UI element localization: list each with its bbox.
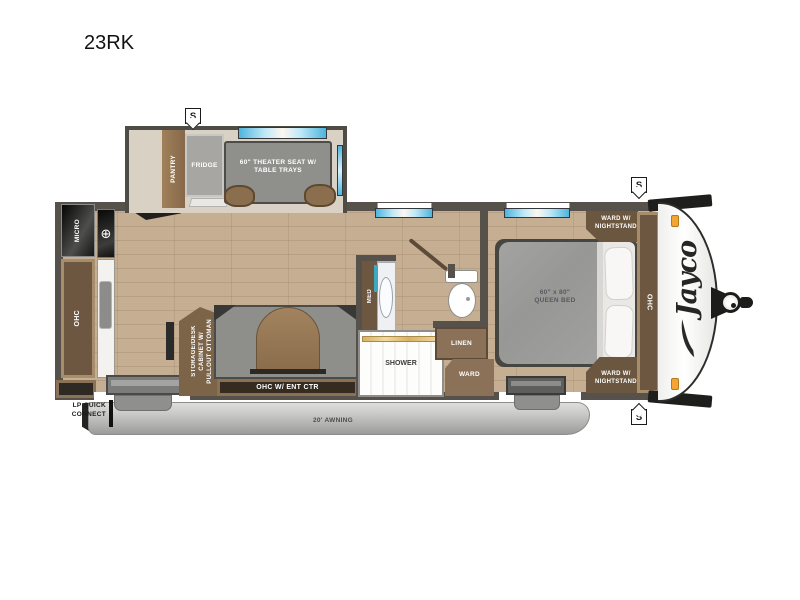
overhead-entertainment-center: OHC W/ ENT CTR: [217, 379, 358, 396]
pillow: [604, 305, 634, 359]
bedroom-ohc-label: OHC: [645, 294, 653, 310]
pantry-label: PANTRY: [170, 155, 178, 183]
vanity-accent: [374, 265, 378, 292]
kitchen-overhead-cabinet: OHC: [61, 259, 95, 378]
refrigerator: FRIDGE: [185, 134, 224, 197]
microwave: MICRO: [61, 204, 95, 257]
wall-mount-strip: [166, 322, 174, 360]
table-tray: [224, 185, 255, 207]
table-tray: [304, 184, 336, 207]
kitchen-ohc-label: OHC: [74, 310, 82, 326]
tongue-jack-wheel: [720, 292, 741, 313]
storage-desk-label: STORAGE/DESK CABINET W/ PULLOUT OTTOMAN: [190, 319, 214, 384]
pillow: [604, 247, 634, 301]
entertainment-arch: [256, 307, 320, 371]
bath-sink: [379, 277, 393, 318]
bedroom-window: [504, 208, 570, 218]
shower-label: SHOWER: [385, 360, 417, 367]
stabilizer-marker: S: [631, 177, 647, 193]
queen-bed-label: 60" x 80" QUEEN BED: [505, 289, 605, 305]
jayco-bird-icon: [679, 318, 697, 358]
clearance-light: [671, 215, 679, 227]
burner-icon: ⊕: [101, 226, 112, 242]
shower-curtain: [362, 336, 440, 342]
pantry: PANTRY: [162, 130, 185, 208]
awning-label: 20' AWNING: [293, 417, 373, 425]
toilet-bowl: [448, 283, 476, 318]
hitch-coupler: [740, 297, 753, 308]
bedroom-step: [514, 395, 560, 410]
brand-logo: Jayco: [656, 240, 720, 358]
clearance-light: [671, 378, 679, 390]
lp-connect-pipe: [109, 399, 113, 427]
linen-label: LINEN: [451, 340, 472, 348]
entry-platform: [106, 375, 184, 395]
bath-bedroom-wall: [480, 209, 488, 333]
bedroom-platform: [506, 376, 566, 395]
jayco-logo-text: Jayco: [673, 240, 704, 315]
cooktop: ⊕: [97, 209, 115, 258]
ent-ctr-label: OHC W/ ENT CTR: [256, 384, 319, 392]
entry-step: [114, 395, 172, 411]
med-label: MED: [366, 289, 374, 303]
microwave-label: MICRO: [74, 219, 82, 242]
stabilizer-marker: S: [185, 108, 201, 124]
window: [375, 208, 433, 218]
stabilizer-marker: S: [631, 409, 647, 425]
lp-quick-connect-label: LP QUICK CONNECT: [46, 402, 106, 419]
entertainment-arch-base: [250, 369, 326, 374]
floorplan-canvas: 23RK 20' AWNING MICRO ⊕ OHC LP QUICK CON…: [0, 0, 800, 600]
linen-cabinet: LINEN: [435, 327, 488, 360]
kitchen-sink: [99, 281, 112, 329]
slide-side-window: [337, 145, 343, 196]
slide-window: [238, 127, 327, 139]
toilet-flush-button: [466, 297, 470, 301]
rear-storage-box: [56, 380, 96, 398]
door-jamb: [448, 264, 455, 278]
bath-wardrobe: WARD: [445, 359, 494, 396]
floorplan-title: 23RK: [84, 32, 134, 55]
fridge-label: FRIDGE: [191, 162, 217, 170]
